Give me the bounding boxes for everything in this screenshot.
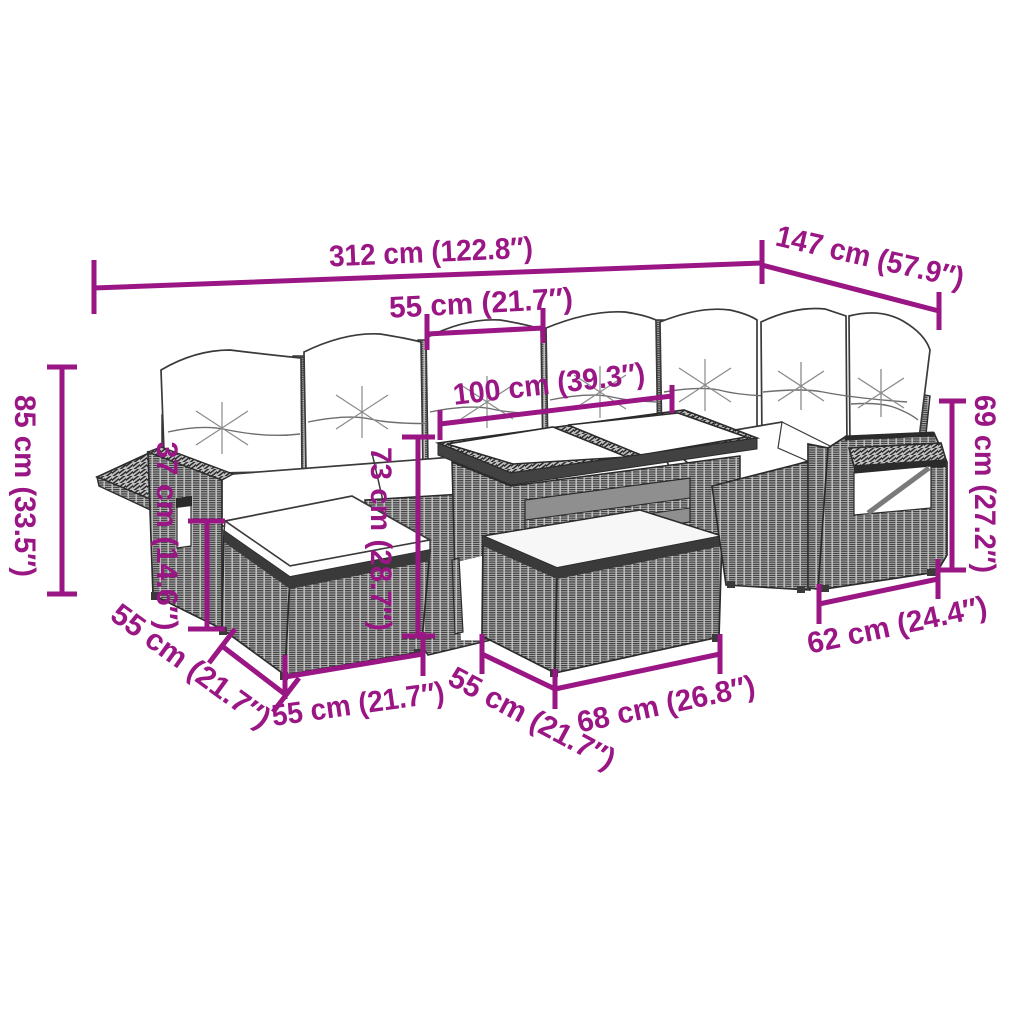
svg-text:85 cm (33.5″): 85 cm (33.5″) xyxy=(8,395,41,577)
svg-text:37 cm (14.6″): 37 cm (14.6″) xyxy=(150,442,183,631)
svg-text:73 cm (28.7″): 73 cm (28.7″) xyxy=(364,447,397,631)
svg-text:69 cm (27.2″): 69 cm (27.2″) xyxy=(968,395,1001,573)
